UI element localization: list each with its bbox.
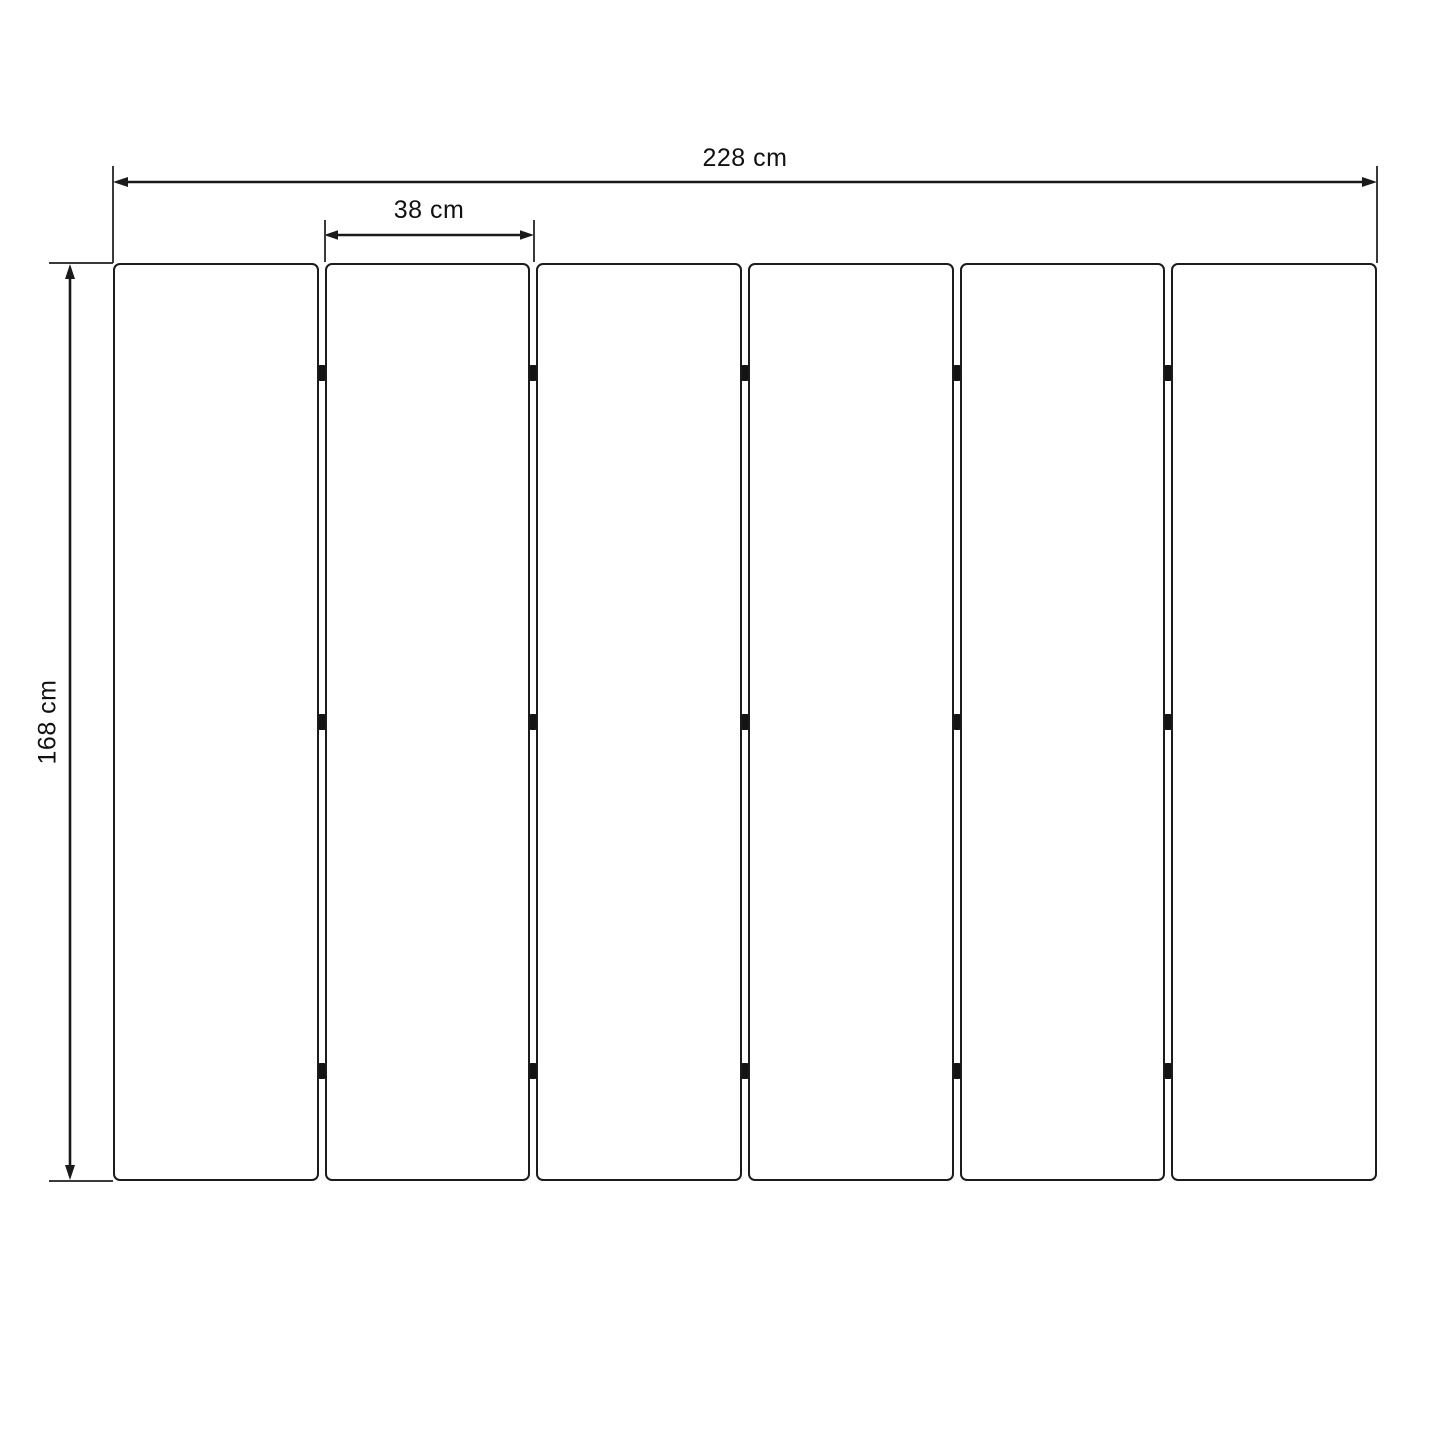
panel-connector xyxy=(1165,1063,1172,1079)
panel-6 xyxy=(1171,263,1377,1181)
panel-2 xyxy=(325,263,531,1181)
panel-connector xyxy=(742,714,749,730)
panel-5 xyxy=(960,263,1166,1181)
panel-connector xyxy=(530,714,537,730)
total-width-dimension-label: 228 cm xyxy=(113,144,1377,173)
panel-3 xyxy=(536,263,742,1181)
extension-line-height-top xyxy=(49,262,113,264)
panel-4 xyxy=(748,263,954,1181)
panel-connector xyxy=(742,1063,749,1079)
panel-connector xyxy=(953,365,960,381)
height-dimension-label: 168 cm xyxy=(34,680,63,765)
total-width-dimension-arrow xyxy=(113,175,1377,189)
panel-connector xyxy=(953,714,960,730)
panel-connector xyxy=(1165,365,1172,381)
panel-connector xyxy=(318,365,325,381)
extension-line-total-right xyxy=(1376,166,1378,263)
diagram-canvas: 228 cm 38 cm 168 cm xyxy=(0,0,1445,1445)
panel-connector xyxy=(530,365,537,381)
extension-line-panel-left xyxy=(324,220,326,262)
panel-width-dimension-label: 38 cm xyxy=(324,196,534,225)
panel-group xyxy=(113,263,1377,1181)
panel-connector xyxy=(953,1063,960,1079)
panel-connector xyxy=(530,1063,537,1079)
panel-1 xyxy=(113,263,319,1181)
height-dimension-arrow xyxy=(63,264,77,1180)
panel-connector xyxy=(318,1063,325,1079)
panel-connector xyxy=(1165,714,1172,730)
extension-line-panel-right xyxy=(533,220,535,262)
panel-connector xyxy=(742,365,749,381)
extension-line-height-bottom xyxy=(49,1180,113,1182)
extension-line-total-left xyxy=(112,166,114,263)
panel-width-dimension-arrow xyxy=(324,228,534,242)
panel-connector xyxy=(318,714,325,730)
